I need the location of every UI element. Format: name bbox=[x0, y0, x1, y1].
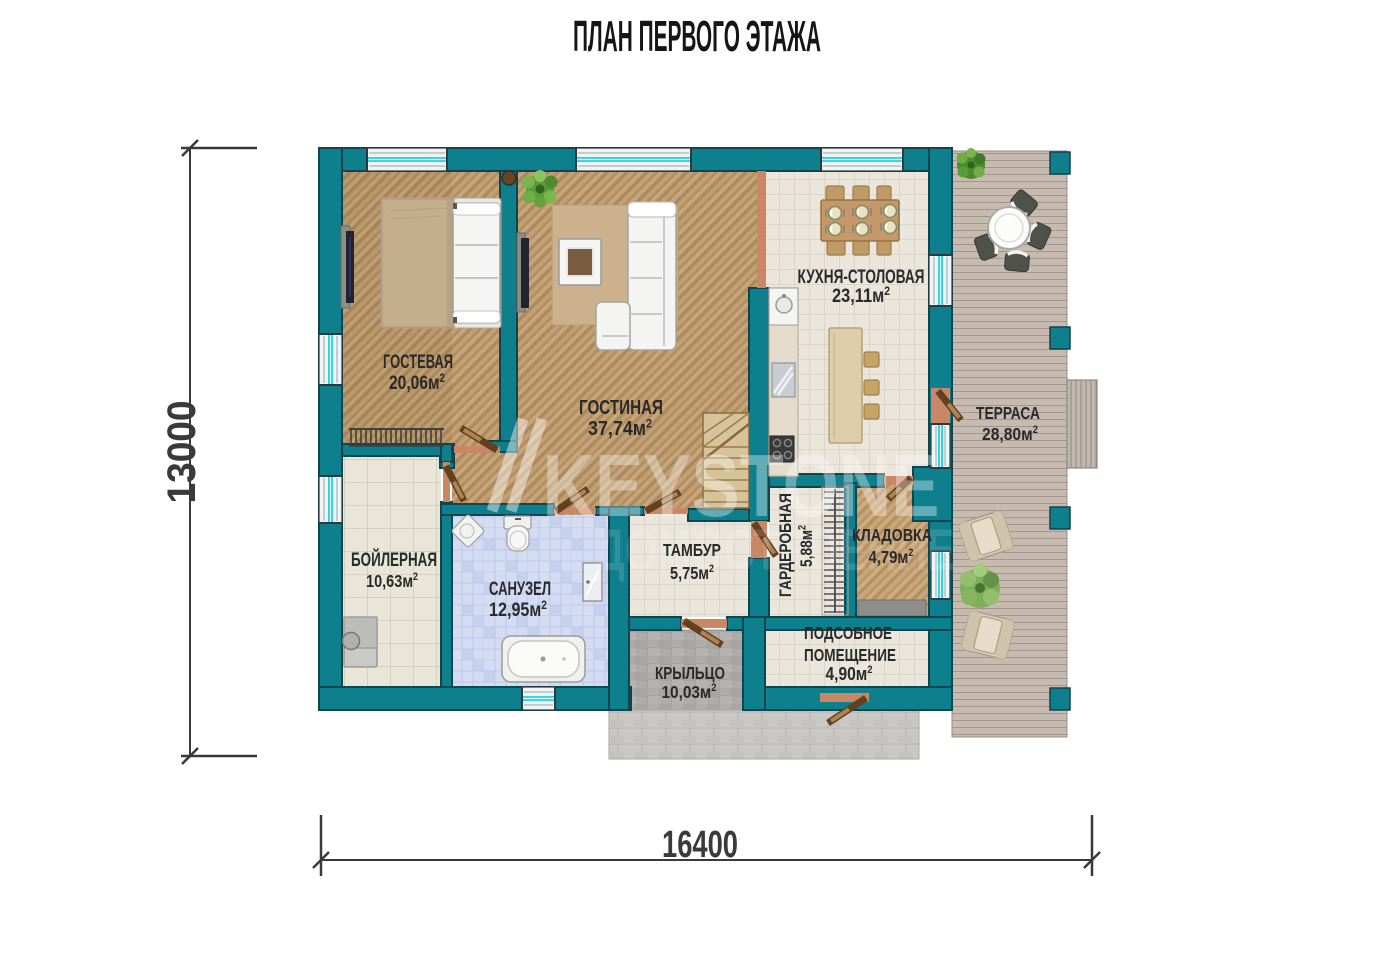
svg-text:12,95м2: 12,95м2 bbox=[489, 599, 547, 621]
svg-text:28,80м2: 28,80м2 bbox=[982, 424, 1038, 444]
svg-text:20,06м2: 20,06м2 bbox=[389, 372, 445, 394]
svg-text:САНУЗЕЛ: САНУЗЕЛ bbox=[489, 579, 551, 600]
svg-text:ТАМБУР: ТАМБУР bbox=[663, 540, 721, 560]
svg-text:5,75м2: 5,75м2 bbox=[670, 563, 714, 583]
svg-text:23,11м2: 23,11м2 bbox=[832, 285, 890, 306]
svg-text:13000: 13000 bbox=[160, 401, 205, 504]
svg-text:ПОМЕЩЕНИЕ: ПОМЕЩЕНИЕ bbox=[804, 646, 896, 665]
svg-text:ГОСТЕВАЯ: ГОСТЕВАЯ bbox=[383, 352, 453, 373]
svg-text:10,63м2: 10,63м2 bbox=[366, 571, 418, 591]
svg-text:10,03м2: 10,03м2 bbox=[662, 682, 717, 702]
svg-text:КРЫЛЬЦО: КРЫЛЬЦО bbox=[655, 664, 725, 683]
svg-text:ГОСТИНАЯ: ГОСТИНАЯ bbox=[579, 396, 663, 419]
svg-text:ГАРДЕРОБНАЯ: ГАРДЕРОБНАЯ bbox=[777, 493, 796, 597]
svg-text:БОЙЛЕРНАЯ: БОЙЛЕРНАЯ bbox=[351, 549, 437, 571]
svg-text:37,74м2: 37,74м2 bbox=[588, 418, 652, 440]
svg-text:ПЛАН ПЕРВОГО ЭТАЖА: ПЛАН ПЕРВОГО ЭТАЖА bbox=[573, 13, 821, 62]
svg-text:КЛАДОВКА: КЛАДОВКА bbox=[852, 525, 932, 545]
svg-text:4,90м2: 4,90м2 bbox=[826, 664, 873, 684]
svg-text:16400: 16400 bbox=[662, 824, 738, 866]
svg-text:ТЕРРАСА: ТЕРРАСА bbox=[976, 403, 1040, 423]
svg-text:ПОДСОБНОЕ: ПОДСОБНОЕ bbox=[804, 624, 892, 643]
svg-text:5,88м2: 5,88м2 bbox=[797, 525, 817, 567]
svg-text:4,79м2: 4,79м2 bbox=[869, 547, 914, 567]
